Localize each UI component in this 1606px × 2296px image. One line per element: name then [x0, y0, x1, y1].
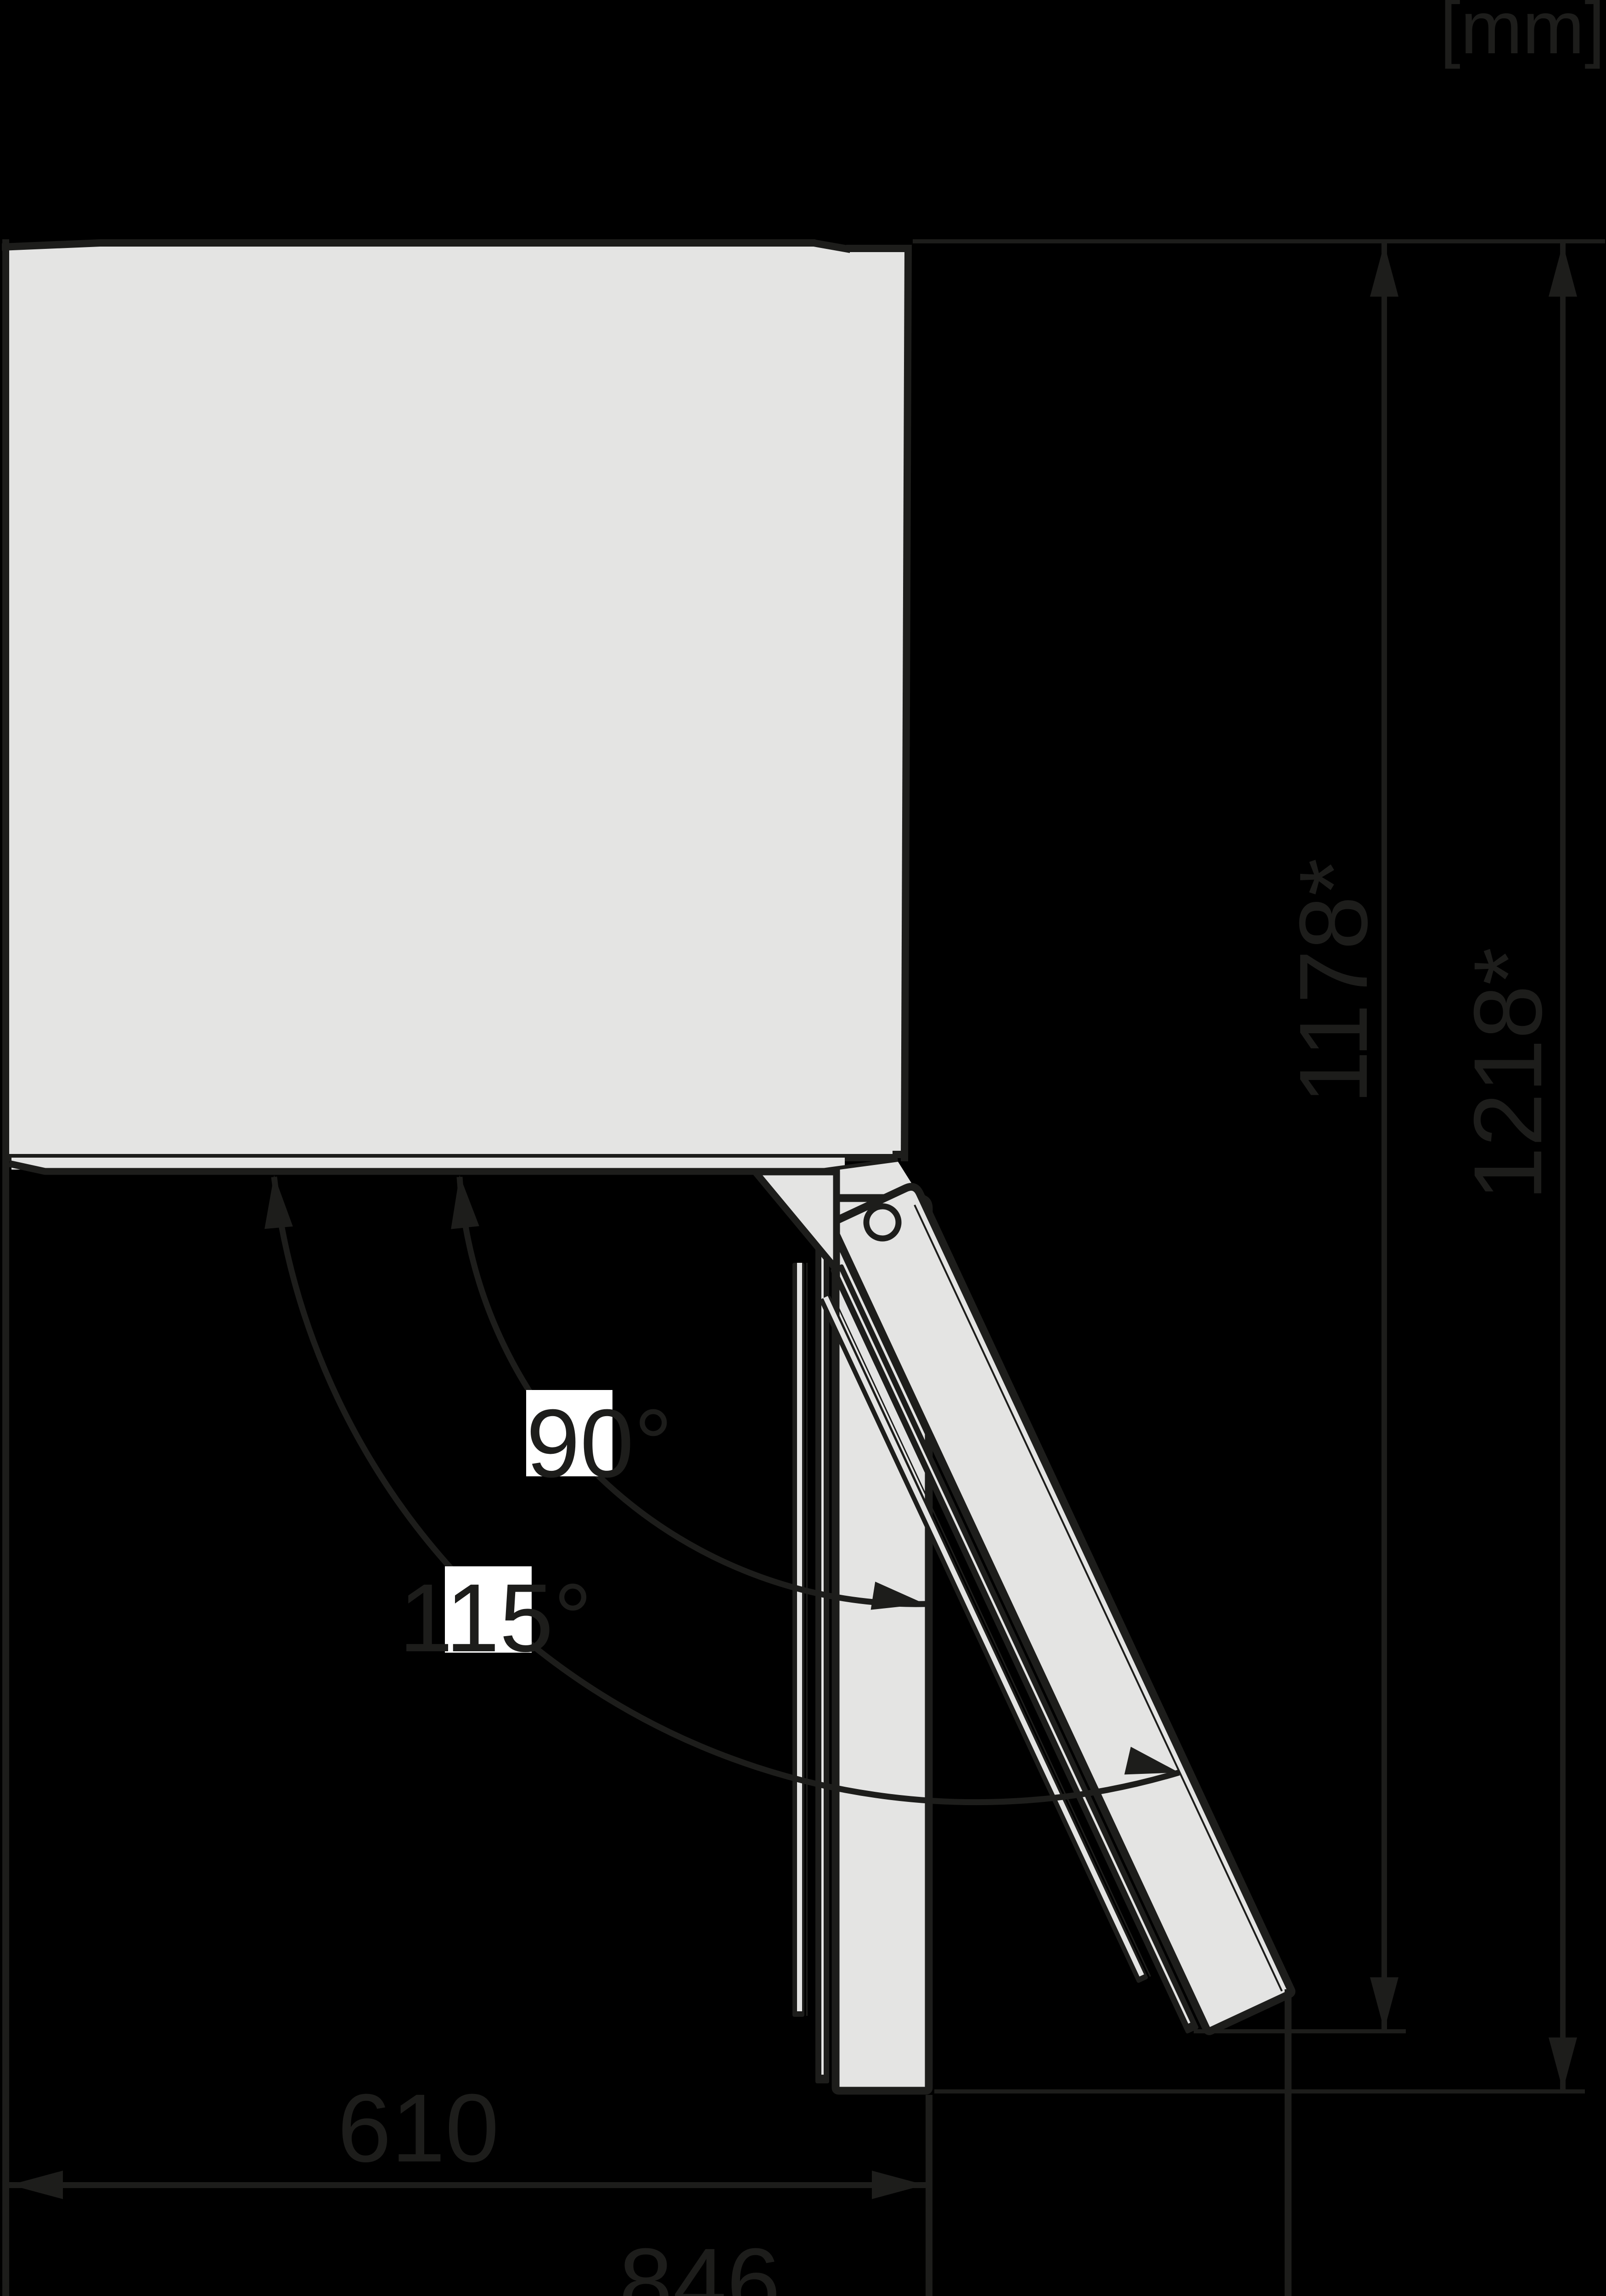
svg-text:115°: 115°: [399, 1564, 592, 1672]
svg-text:90°: 90°: [526, 1389, 673, 1497]
svg-text:610: 610: [337, 2074, 499, 2182]
svg-text:846: 846: [619, 2228, 781, 2296]
svg-text:1218*: 1218*: [1454, 947, 1562, 1201]
svg-text:[mm]: [mm]: [1440, 0, 1605, 69]
svg-text:1178*: 1178*: [1279, 858, 1387, 1104]
